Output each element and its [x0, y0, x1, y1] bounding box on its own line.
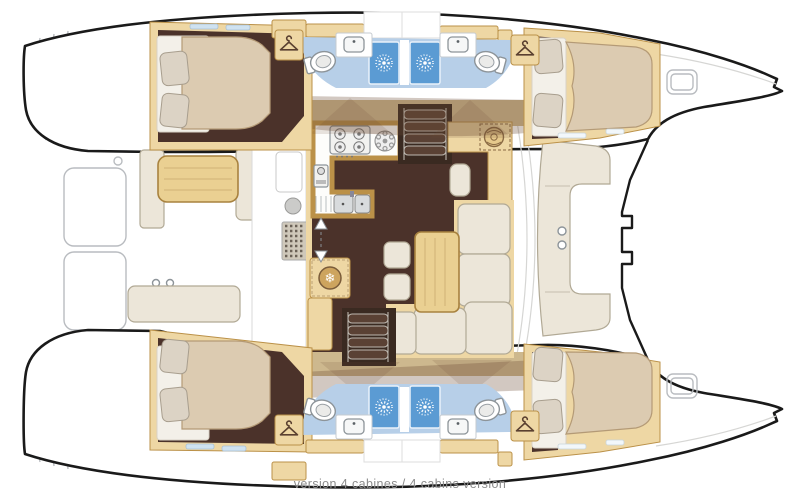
washbasin-icon	[440, 33, 476, 57]
hull-window	[222, 446, 246, 451]
snowflake-icon: ❄	[325, 271, 336, 286]
hull-window	[226, 25, 250, 30]
nav-seat	[450, 164, 470, 196]
pillow	[159, 387, 189, 423]
washbasin-icon	[336, 415, 372, 439]
cupholder	[558, 227, 566, 235]
caption: version 4 cabines / 4 cabins version	[294, 477, 506, 491]
hull-window	[606, 129, 624, 134]
double-bed	[566, 352, 652, 434]
aft-center-step-lower	[64, 252, 126, 330]
ottoman	[384, 274, 410, 300]
salon-table	[415, 232, 459, 312]
double-bed	[566, 42, 652, 131]
wardrobe-hanger-icon	[275, 415, 303, 445]
pillow	[533, 93, 564, 128]
starboard-forward-cabin	[524, 344, 660, 460]
pillow	[159, 339, 189, 375]
hull-window	[606, 440, 624, 445]
double-bed	[182, 341, 270, 429]
forward-cockpit	[516, 116, 610, 360]
ottoman	[384, 242, 410, 268]
winch	[285, 198, 301, 214]
cockpit-grate	[282, 222, 308, 260]
hull-window	[186, 444, 214, 449]
salon: ❄	[302, 96, 538, 398]
cockpit-aft-bench	[128, 286, 240, 322]
aft-center-step-upper	[64, 168, 126, 246]
wardrobe-hanger-icon	[511, 35, 539, 65]
hull-window	[558, 444, 586, 449]
pillow	[159, 93, 189, 129]
coffee-machine-icon	[314, 165, 328, 187]
port-forward-cabin	[524, 28, 660, 146]
pillow	[533, 347, 564, 382]
cupholder	[558, 241, 566, 249]
hull-window	[190, 24, 218, 29]
forward-cockpit-seat	[538, 140, 611, 336]
double-bed	[182, 37, 270, 129]
hull-window	[558, 133, 586, 138]
washbasin-icon	[336, 33, 372, 57]
wardrobe-hanger-icon	[275, 30, 303, 60]
wardrobe-hanger-icon	[511, 411, 539, 441]
catamaran-floorplan: ❄	[0, 0, 800, 500]
starboard-hull-stairs	[342, 308, 396, 366]
forward-beam-line	[622, 140, 648, 360]
windshield-line	[516, 116, 527, 360]
cockpit-locker	[276, 152, 302, 192]
stern-cleat-port	[114, 157, 122, 165]
washbasin-icon	[440, 415, 476, 439]
pillow	[159, 51, 189, 87]
floorplan-svg: ❄	[0, 0, 800, 500]
